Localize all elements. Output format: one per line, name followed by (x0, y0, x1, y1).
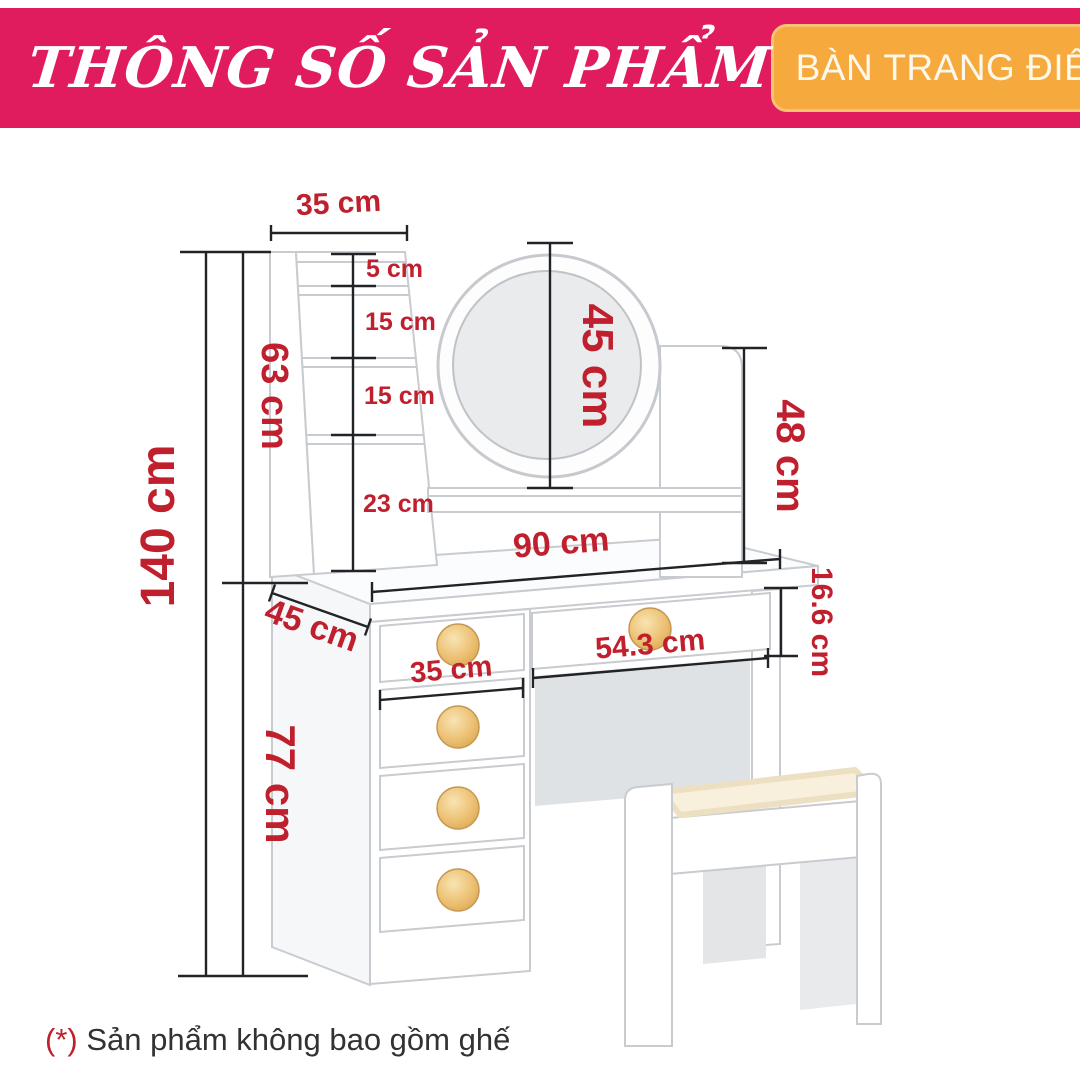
header-bar: THÔNG SỐ SẢN PHẨM BÀN TRANG ĐIỂM: MERCUR… (0, 8, 1080, 128)
label-shelf-gap-4: 23 cm (363, 490, 434, 518)
label-mirror-diameter: 45 cm (573, 304, 622, 429)
label-total-height: 140 cm (132, 445, 185, 608)
stool-back-leg-left (703, 862, 766, 964)
stool-back-leg-right (800, 855, 856, 1010)
label-drawer-height: 16.6 cm (805, 567, 838, 677)
shelf-tower-body (296, 252, 437, 574)
stool (625, 770, 881, 1046)
label-shelf-gap-3: 15 cm (364, 382, 435, 410)
label-lower-height: 77 cm (257, 724, 304, 843)
stool-right-panel (857, 774, 881, 1024)
drawer-knob-2 (437, 706, 479, 748)
vanity-dimension-diagram: 140 cm 63 cm 77 cm 35 cm 5 cm 15 cm 15 c… (0, 0, 1080, 1080)
label-shelf-gap-1: 5 cm (366, 255, 423, 283)
page-title: THÔNG SỐ SẢN PHẨM (25, 35, 775, 101)
label-tabletop-width: 90 cm (512, 520, 611, 565)
product-badge-label: BÀN TRANG ĐIỂM: MERCURY (796, 47, 1080, 89)
footnote-text: Sản phẩm không bao gồm ghế (78, 1022, 511, 1057)
product-badge: BÀN TRANG ĐIỂM: MERCURY (771, 24, 1080, 112)
stool-left-panel (625, 784, 672, 1046)
label-shelf-width: 35 cm (295, 185, 382, 222)
footnote-marker: (*) (45, 1022, 78, 1057)
hutch (270, 252, 742, 577)
label-shelf-gap-2: 15 cm (365, 308, 436, 336)
drawer-knob-3 (437, 787, 479, 829)
label-mirror-panel-height: 48 cm (768, 399, 812, 512)
label-upper-height: 63 cm (253, 342, 295, 450)
mirror-side-panel (660, 346, 742, 577)
footnote: (*) Sản phẩm không bao gồm ghế (45, 1022, 510, 1058)
mirror-shelf (428, 488, 742, 512)
drawer-knob-4 (437, 869, 479, 911)
